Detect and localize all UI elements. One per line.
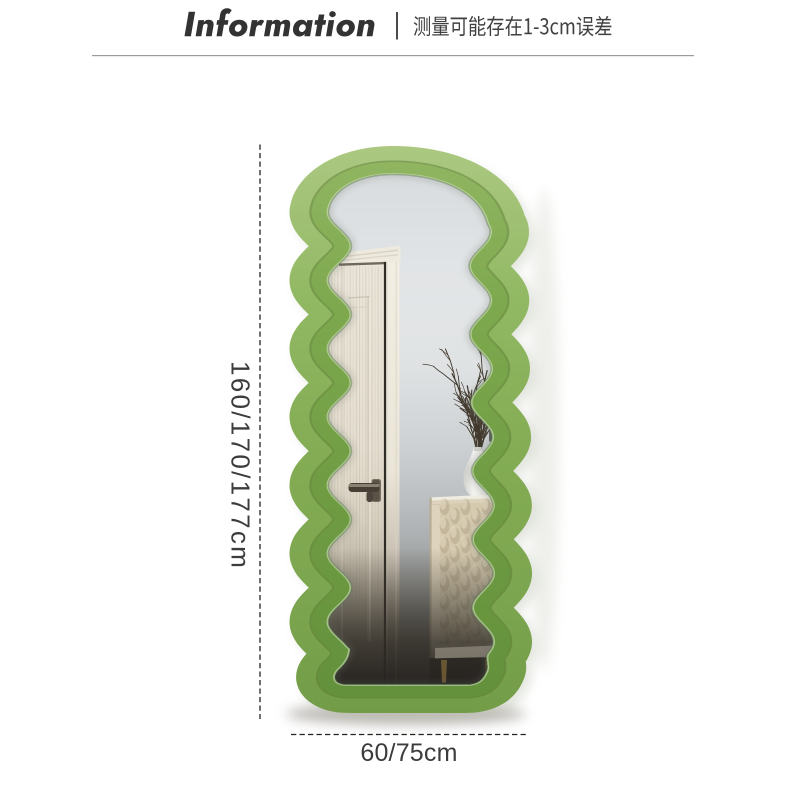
svg-text:60/75cm: 60/75cm [360,739,457,767]
svg-text:160/170/177cm: 160/170/177cm [226,361,256,570]
